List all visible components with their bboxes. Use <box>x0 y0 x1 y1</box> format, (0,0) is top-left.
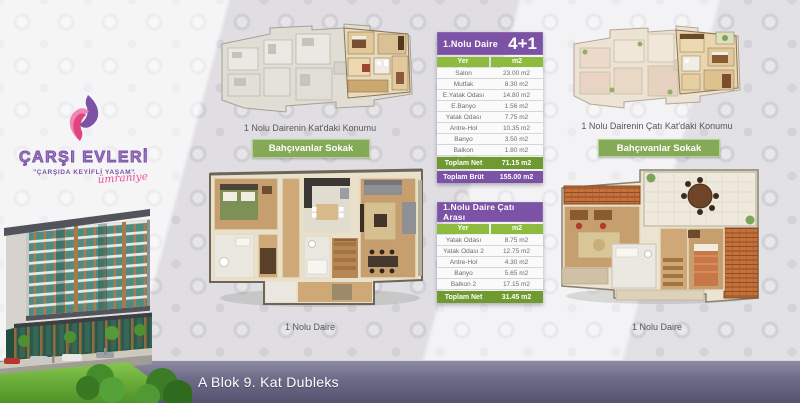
column-yer: Yer <box>437 57 489 67</box>
table-row: Balkon 217.15 m2 <box>437 279 543 290</box>
table-row: Yatak Odası 212.75 m2 <box>437 246 543 257</box>
area-cell: 1.56 m2 <box>490 103 543 110</box>
main-unit-spec-table: 1.Nolu Daire 4+1 Yer m2 Salon23.00 m2 Mu… <box>437 32 543 183</box>
table-row: Antre-Hol10.35 m2 <box>437 123 543 134</box>
room-name-cell: Mutfak <box>437 81 490 88</box>
area-cell: 7.75 m2 <box>490 114 543 121</box>
street-label-roof: Bahçıvanlar Sokak <box>598 139 720 157</box>
total-net-row: Toplam Net 31.45 m2 <box>437 291 543 303</box>
roof-location-caption: 1 Nolu Dairenin Çatı Kat'daki Konumu <box>567 121 747 131</box>
column-m2: m2 <box>491 224 543 234</box>
area-cell: 5.65 m2 <box>490 270 543 277</box>
total-gross-label: Toplam Brüt <box>437 174 490 181</box>
brand-title: ÇARŞI EVLERİ <box>8 149 160 167</box>
area-cell: 14.80 m2 <box>490 92 543 99</box>
table-row: Banyo3.50 m2 <box>437 134 543 145</box>
roof-location-plan-image <box>570 22 744 114</box>
table-title: 1.Nolu Daire <box>443 39 498 49</box>
column-m2: m2 <box>491 57 543 67</box>
room-name-cell: E.Yatak Odası <box>437 92 490 99</box>
column-headers: Yer m2 <box>437 224 543 234</box>
total-net-label: Toplam Net <box>437 160 490 167</box>
table-row: Yatak Odası7.75 m2 <box>437 112 543 123</box>
area-cell: 12.75 m2 <box>490 248 543 255</box>
column-yer: Yer <box>437 224 489 234</box>
room-name-cell: Antre-Hol <box>437 125 490 132</box>
room-name-cell: Yatak Odası <box>437 237 490 244</box>
column-headers: Yer m2 <box>437 57 543 67</box>
room-name-cell: E.Banyo <box>437 103 490 110</box>
flame-logo-icon <box>63 94 105 142</box>
room-name-cell: Antre-Hol <box>437 259 490 266</box>
table-row: E.Banyo1.56 m2 <box>437 101 543 112</box>
street-label-floor: Bahçıvanlar Sokak <box>252 139 370 158</box>
area-cell: 8.30 m2 <box>490 81 543 88</box>
room-name-cell: Banyo <box>437 270 490 277</box>
table-header: 1.Nolu Daire 4+1 <box>437 32 543 55</box>
area-cell: 23.00 m2 <box>490 70 543 77</box>
area-cell: 4.30 m2 <box>490 259 543 266</box>
building-render-image <box>0 198 192 403</box>
total-net-label: Toplam Net <box>437 294 490 301</box>
attic-unit-plan-image <box>553 166 767 308</box>
main-unit-caption: 1 Nolu Daire <box>220 322 400 332</box>
attic-spec-table: 1.Nolu Daire Çatı Arası Yer m2 Yatak Oda… <box>437 202 543 303</box>
table-body: Yatak Odası8.75 m2 Yatak Odası 212.75 m2… <box>437 235 543 290</box>
table-row: Yatak Odası8.75 m2 <box>437 235 543 246</box>
attic-unit-caption: 1 Nolu Daire <box>567 322 747 332</box>
total-net-value: 31.45 m2 <box>490 294 543 301</box>
room-name-cell: Yatak Odası <box>437 114 490 121</box>
table-body: Salon23.00 m2 Mutfak8.30 m2 E.Yatak Odas… <box>437 68 543 156</box>
area-cell: 17.15 m2 <box>490 281 543 288</box>
brochure-page: ÇARŞI EVLERİ "ÇARŞIDA KEYİFLİ YAŞAM" ümr… <box>0 0 800 403</box>
main-unit-plan-image <box>202 164 430 312</box>
room-name-cell: Yatak Odası 2 <box>437 248 490 255</box>
block-floor-label: A Blok 9. Kat Dubleks <box>198 374 339 390</box>
total-net-value: 71.15 m2 <box>490 160 543 167</box>
table-row: Salon23.00 m2 <box>437 68 543 79</box>
room-name-cell: Salon <box>437 70 490 77</box>
floor-location-caption: 1 Nolu Dairenin Kat'daki Konumu <box>210 123 410 133</box>
area-cell: 8.75 m2 <box>490 237 543 244</box>
room-count-badge: 4+1 <box>508 34 537 54</box>
area-cell: 3.50 m2 <box>490 136 543 143</box>
total-gross-row: Toplam Brüt 155.00 m2 <box>437 171 543 183</box>
room-name-cell: Balkon 2 <box>437 281 490 288</box>
area-cell: 1.80 m2 <box>490 147 543 154</box>
brand-logo: ÇARŞI EVLERİ "ÇARŞIDA KEYİFLİ YAŞAM" ümr… <box>8 94 160 187</box>
room-name-cell: Balkon <box>437 147 490 154</box>
table-row: Antre-Hol4.30 m2 <box>437 257 543 268</box>
table-title: 1.Nolu Daire Çatı Arası <box>443 202 537 222</box>
floor-location-plan-image <box>216 20 418 120</box>
table-row: Banyo5.65 m2 <box>437 268 543 279</box>
table-row: Mutfak8.30 m2 <box>437 79 543 90</box>
table-row: E.Yatak Odası14.80 m2 <box>437 90 543 101</box>
table-row: Balkon1.80 m2 <box>437 145 543 156</box>
table-header: 1.Nolu Daire Çatı Arası <box>437 202 543 222</box>
room-name-cell: Banyo <box>437 136 490 143</box>
area-cell: 10.35 m2 <box>490 125 543 132</box>
total-gross-value: 155.00 m2 <box>490 174 543 181</box>
total-net-row: Toplam Net 71.15 m2 <box>437 157 543 169</box>
